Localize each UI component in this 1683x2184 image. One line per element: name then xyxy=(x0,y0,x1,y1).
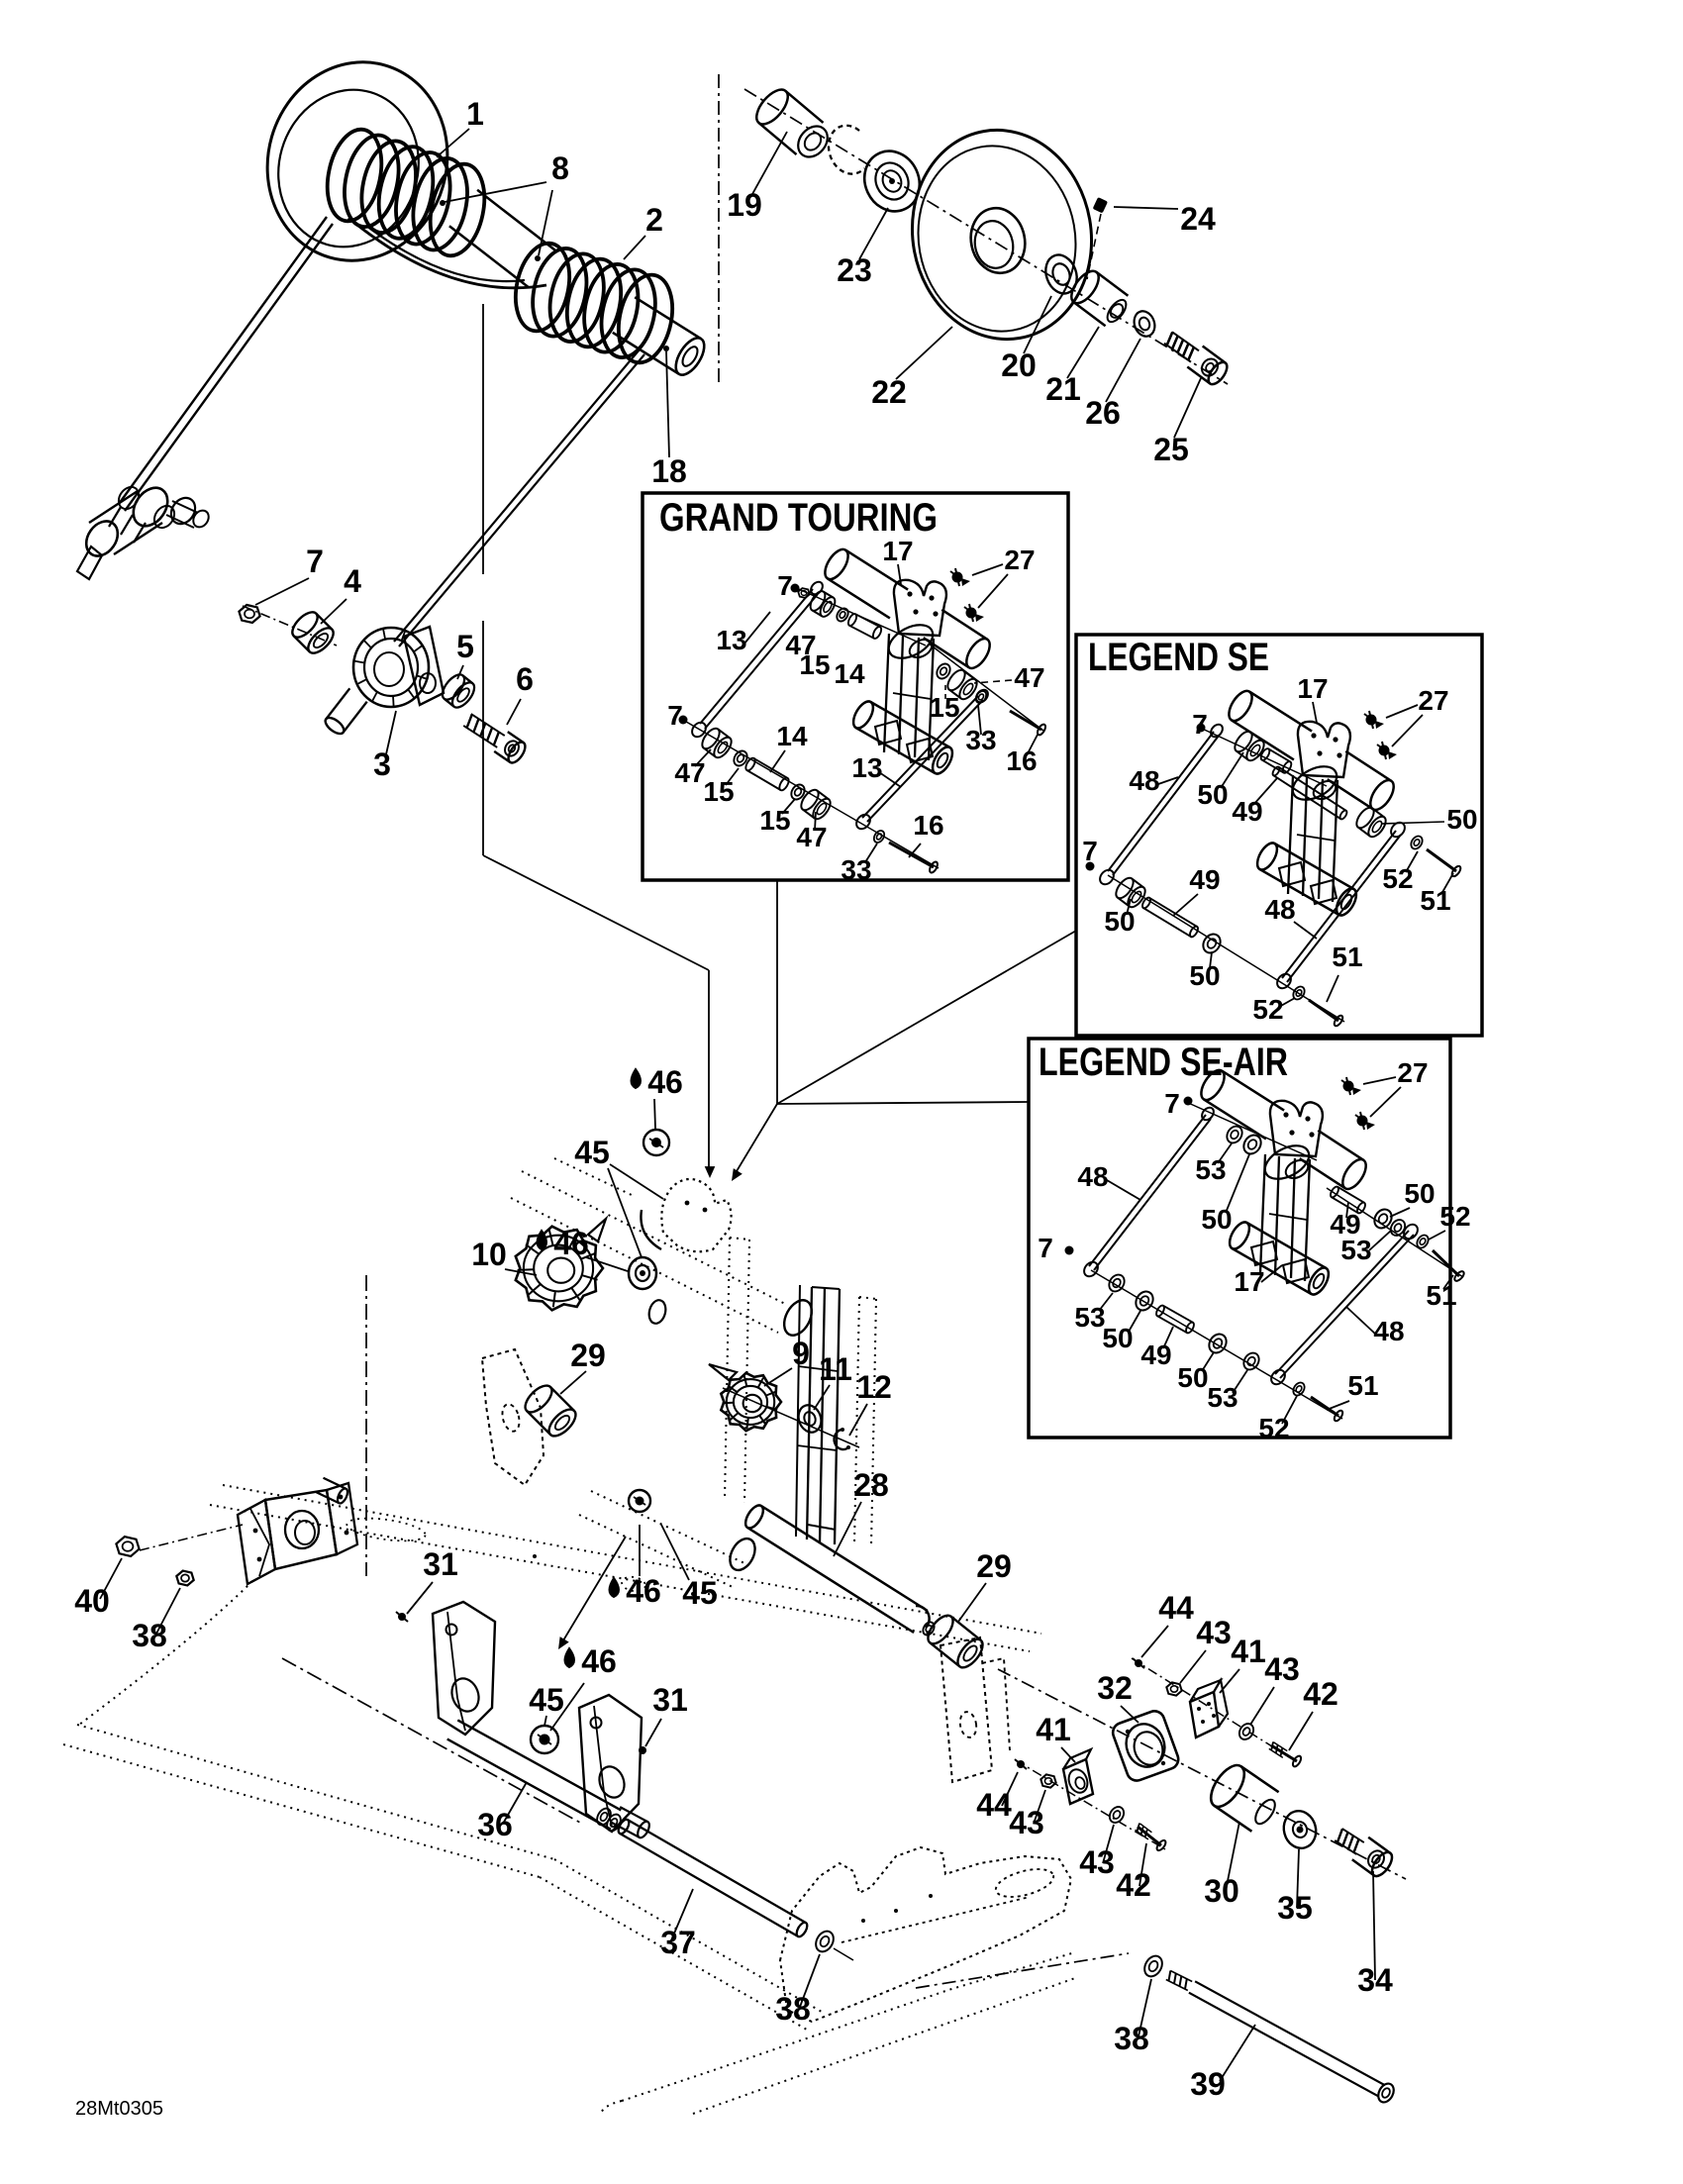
svg-text:27: 27 xyxy=(1418,685,1448,716)
svg-text:24: 24 xyxy=(1180,201,1216,237)
svg-text:38: 38 xyxy=(1114,2021,1149,2056)
svg-text:50: 50 xyxy=(1404,1178,1435,1209)
svg-text:51: 51 xyxy=(1347,1370,1378,1401)
svg-text:51: 51 xyxy=(1426,1280,1456,1311)
svg-text:7: 7 xyxy=(1082,836,1098,866)
svg-text:44: 44 xyxy=(1158,1590,1194,1626)
svg-text:42: 42 xyxy=(1116,1867,1151,1903)
svg-text:9: 9 xyxy=(792,1336,810,1371)
svg-text:18: 18 xyxy=(651,453,687,489)
svg-text:51: 51 xyxy=(1332,942,1362,972)
svg-text:27: 27 xyxy=(1397,1057,1428,1088)
svg-text:11: 11 xyxy=(819,1351,852,1387)
svg-text:13: 13 xyxy=(716,625,746,655)
svg-text:14: 14 xyxy=(776,721,808,751)
svg-text:26: 26 xyxy=(1085,395,1121,431)
svg-text:47: 47 xyxy=(1014,662,1044,693)
svg-text:28: 28 xyxy=(853,1467,889,1503)
svg-text:41: 41 xyxy=(1036,1712,1071,1747)
svg-text:51: 51 xyxy=(1420,885,1450,916)
svg-text:3: 3 xyxy=(373,746,391,782)
svg-text:15: 15 xyxy=(929,692,959,723)
svg-text:48: 48 xyxy=(1373,1316,1404,1346)
svg-text:29: 29 xyxy=(976,1548,1012,1584)
svg-text:45: 45 xyxy=(682,1575,718,1611)
svg-text:46: 46 xyxy=(581,1643,617,1679)
svg-text:2: 2 xyxy=(645,202,663,238)
svg-text:6: 6 xyxy=(516,661,534,697)
svg-text:1: 1 xyxy=(466,96,484,132)
svg-text:7: 7 xyxy=(1192,709,1208,740)
svg-text:53: 53 xyxy=(1207,1382,1237,1413)
svg-text:47: 47 xyxy=(674,757,705,788)
svg-text:7: 7 xyxy=(306,544,324,579)
svg-text:43: 43 xyxy=(1264,1651,1300,1687)
svg-text:53: 53 xyxy=(1340,1235,1371,1265)
svg-text:50: 50 xyxy=(1446,804,1477,835)
svg-text:17: 17 xyxy=(1234,1266,1264,1297)
svg-text:50: 50 xyxy=(1104,906,1135,937)
svg-text:14: 14 xyxy=(834,658,865,689)
svg-text:30: 30 xyxy=(1204,1873,1239,1909)
svg-text:GRAND TOURING: GRAND TOURING xyxy=(659,496,938,540)
svg-text:27: 27 xyxy=(1004,545,1035,575)
svg-text:44: 44 xyxy=(976,1787,1012,1823)
svg-text:19: 19 xyxy=(727,187,762,223)
svg-text:7: 7 xyxy=(777,570,793,601)
svg-text:38: 38 xyxy=(775,1991,811,2027)
svg-text:37: 37 xyxy=(660,1925,696,1960)
svg-text:50: 50 xyxy=(1189,960,1220,991)
svg-text:36: 36 xyxy=(477,1807,513,1842)
svg-text:28Mt0305: 28Mt0305 xyxy=(75,2098,163,2120)
svg-text:15: 15 xyxy=(799,649,830,680)
svg-text:52: 52 xyxy=(1252,994,1283,1025)
svg-text:48: 48 xyxy=(1264,894,1295,925)
svg-text:53: 53 xyxy=(1074,1302,1105,1333)
svg-text:7: 7 xyxy=(1038,1233,1053,1263)
svg-text:45: 45 xyxy=(574,1135,610,1170)
svg-text:49: 49 xyxy=(1140,1340,1171,1370)
svg-text:50: 50 xyxy=(1102,1323,1133,1353)
svg-text:7: 7 xyxy=(1164,1088,1180,1119)
svg-text:22: 22 xyxy=(871,374,907,410)
svg-text:12: 12 xyxy=(856,1369,892,1405)
svg-text:16: 16 xyxy=(1006,745,1037,776)
svg-text:47: 47 xyxy=(796,822,827,852)
svg-text:42: 42 xyxy=(1303,1676,1338,1712)
svg-text:41: 41 xyxy=(1231,1634,1266,1669)
svg-text:49: 49 xyxy=(1189,864,1220,895)
svg-text:46: 46 xyxy=(647,1064,683,1100)
svg-text:43: 43 xyxy=(1079,1844,1115,1880)
svg-text:31: 31 xyxy=(423,1546,458,1582)
svg-text:32: 32 xyxy=(1097,1670,1133,1706)
svg-text:17: 17 xyxy=(882,536,913,566)
svg-text:23: 23 xyxy=(837,252,872,288)
svg-text:40: 40 xyxy=(74,1583,110,1619)
svg-text:LEGEND SE-AIR: LEGEND SE-AIR xyxy=(1039,1041,1288,1084)
svg-text:48: 48 xyxy=(1077,1161,1108,1192)
svg-text:35: 35 xyxy=(1277,1890,1313,1926)
svg-text:LEGEND SE: LEGEND SE xyxy=(1088,636,1269,679)
svg-text:21: 21 xyxy=(1045,371,1081,407)
svg-text:46: 46 xyxy=(553,1226,589,1261)
svg-text:7: 7 xyxy=(667,700,683,731)
svg-text:5: 5 xyxy=(456,629,474,664)
svg-text:45: 45 xyxy=(529,1682,564,1718)
svg-text:25: 25 xyxy=(1153,432,1189,467)
svg-text:13: 13 xyxy=(851,752,882,783)
svg-text:17: 17 xyxy=(1297,673,1328,704)
svg-text:48: 48 xyxy=(1129,765,1159,796)
svg-text:10: 10 xyxy=(471,1237,507,1272)
svg-text:4: 4 xyxy=(344,563,361,599)
svg-text:20: 20 xyxy=(1001,347,1037,383)
svg-text:43: 43 xyxy=(1196,1615,1232,1650)
svg-text:16: 16 xyxy=(913,810,943,841)
svg-text:29: 29 xyxy=(570,1338,606,1373)
svg-text:52: 52 xyxy=(1439,1201,1470,1232)
svg-text:8: 8 xyxy=(551,150,569,186)
svg-text:39: 39 xyxy=(1190,2066,1226,2102)
svg-text:31: 31 xyxy=(652,1682,688,1718)
svg-text:46: 46 xyxy=(626,1573,661,1609)
